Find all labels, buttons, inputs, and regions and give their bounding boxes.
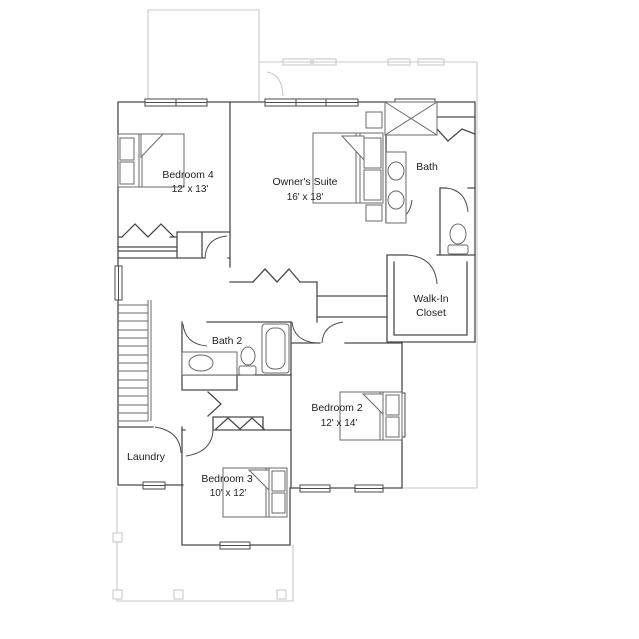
walkin-closet-label-1: Walk-In	[413, 293, 448, 305]
bath-label: Bath	[416, 161, 438, 173]
sink-icon-bath2	[182, 352, 237, 375]
laundry-door-arc	[155, 427, 181, 453]
bedroom4-window	[145, 99, 207, 106]
bath2-label: Bath 2	[212, 335, 243, 347]
hall-walls	[291, 282, 402, 488]
bed-icon-owners-suite	[313, 112, 383, 221]
owners-suite-window	[265, 99, 358, 106]
walkin-closet-label-2: Closet	[416, 307, 446, 319]
bedroom3-closet-bifold	[216, 418, 264, 429]
toilet-icon-owners-bath	[448, 224, 468, 254]
bath2-door-arc	[183, 324, 207, 346]
owners-suite-label: Owner's Suite	[272, 176, 337, 188]
laundry-label: Laundry	[127, 451, 166, 463]
stair-window	[115, 266, 122, 300]
bedroom3-door-arc	[186, 430, 213, 456]
owners-suite-double-door	[253, 269, 300, 282]
lower-entry-door-arc	[267, 72, 283, 96]
linen-closet-door	[208, 392, 221, 416]
walkin-closet-door-arc	[407, 255, 437, 284]
floorplan-drawing: Bedroom 4 12' x 13' Owner's Suite 16' x …	[0, 0, 639, 639]
stairs-icon	[118, 300, 151, 421]
bedroom3-label: Bedroom 3	[201, 473, 253, 485]
bedroom2-label: Bedroom 2	[311, 402, 363, 414]
bedroom4-dims: 12' x 13'	[172, 184, 209, 195]
bathtub-icon	[262, 324, 289, 373]
water-closet-door-arc	[446, 188, 468, 212]
laundry-window	[143, 482, 165, 489]
bedroom2-dims: 12' x 14'	[321, 418, 358, 429]
nightstand-icon	[366, 112, 382, 128]
bedroom3-dims: 10' x 12'	[210, 488, 247, 499]
bedroom4-door-arc	[205, 236, 227, 258]
shower-icon	[385, 102, 437, 135]
lower-roof-outline	[148, 10, 477, 488]
double-vanity-icon	[386, 152, 406, 223]
bedroom3-walls	[118, 417, 291, 430]
nightstand-icon	[366, 205, 382, 221]
floorplan-page: Bedroom 4 12' x 13' Owner's Suite 16' x …	[0, 0, 639, 639]
bath-linen-rod	[437, 129, 475, 141]
bedroom3-window	[220, 542, 250, 549]
hall-door-arc	[292, 322, 316, 343]
toilet-icon-bath2	[239, 347, 256, 375]
owners-suite-dims: 16' x 18'	[287, 192, 324, 203]
porch-posts	[113, 533, 286, 599]
door-swings	[155, 188, 468, 456]
bed-icon-bedroom2	[340, 392, 402, 440]
bedroom4-label: Bedroom 4	[162, 169, 214, 181]
bedroom2-door-arc	[322, 322, 343, 343]
bedroom4-closet-bifold	[122, 224, 174, 237]
